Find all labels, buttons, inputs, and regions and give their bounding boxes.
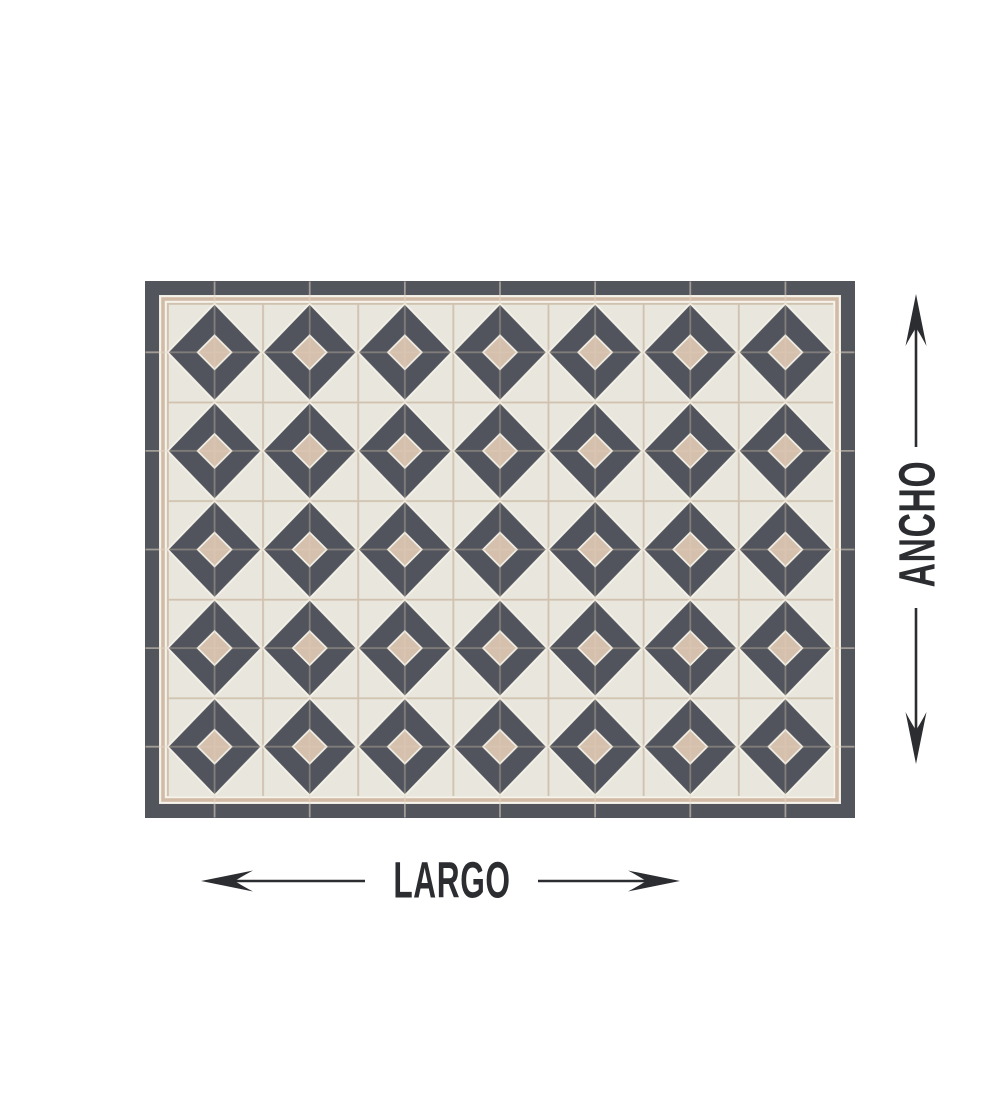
rug-dimension-diagram: ANCHO LARGO [0, 0, 1000, 1100]
largo-label: LARGO [393, 854, 510, 905]
arrow-left-icon [199, 868, 367, 894]
arrow-down-icon [902, 606, 930, 766]
ancho-label: ANCHO [892, 461, 943, 588]
rug-illustration [145, 281, 855, 818]
arrow-right-icon [536, 868, 682, 894]
tile-field [167, 303, 833, 796]
arrow-up-icon [902, 292, 930, 448]
